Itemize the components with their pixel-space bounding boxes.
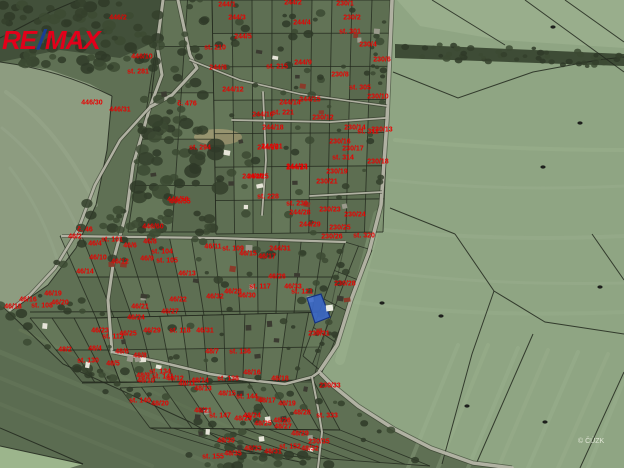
remax-logo-max: MAX bbox=[45, 25, 100, 55]
map-attribution: © ČÚZK bbox=[578, 438, 604, 445]
listing-map-image: 446/2446/10st. 281446/30446/31č. 476st. … bbox=[0, 0, 624, 468]
remax-logo-re: RE bbox=[2, 25, 36, 55]
remax-logo: RE/MAX bbox=[2, 26, 100, 54]
aerial-map bbox=[0, 0, 624, 468]
remax-logo-slash: / bbox=[36, 24, 45, 55]
